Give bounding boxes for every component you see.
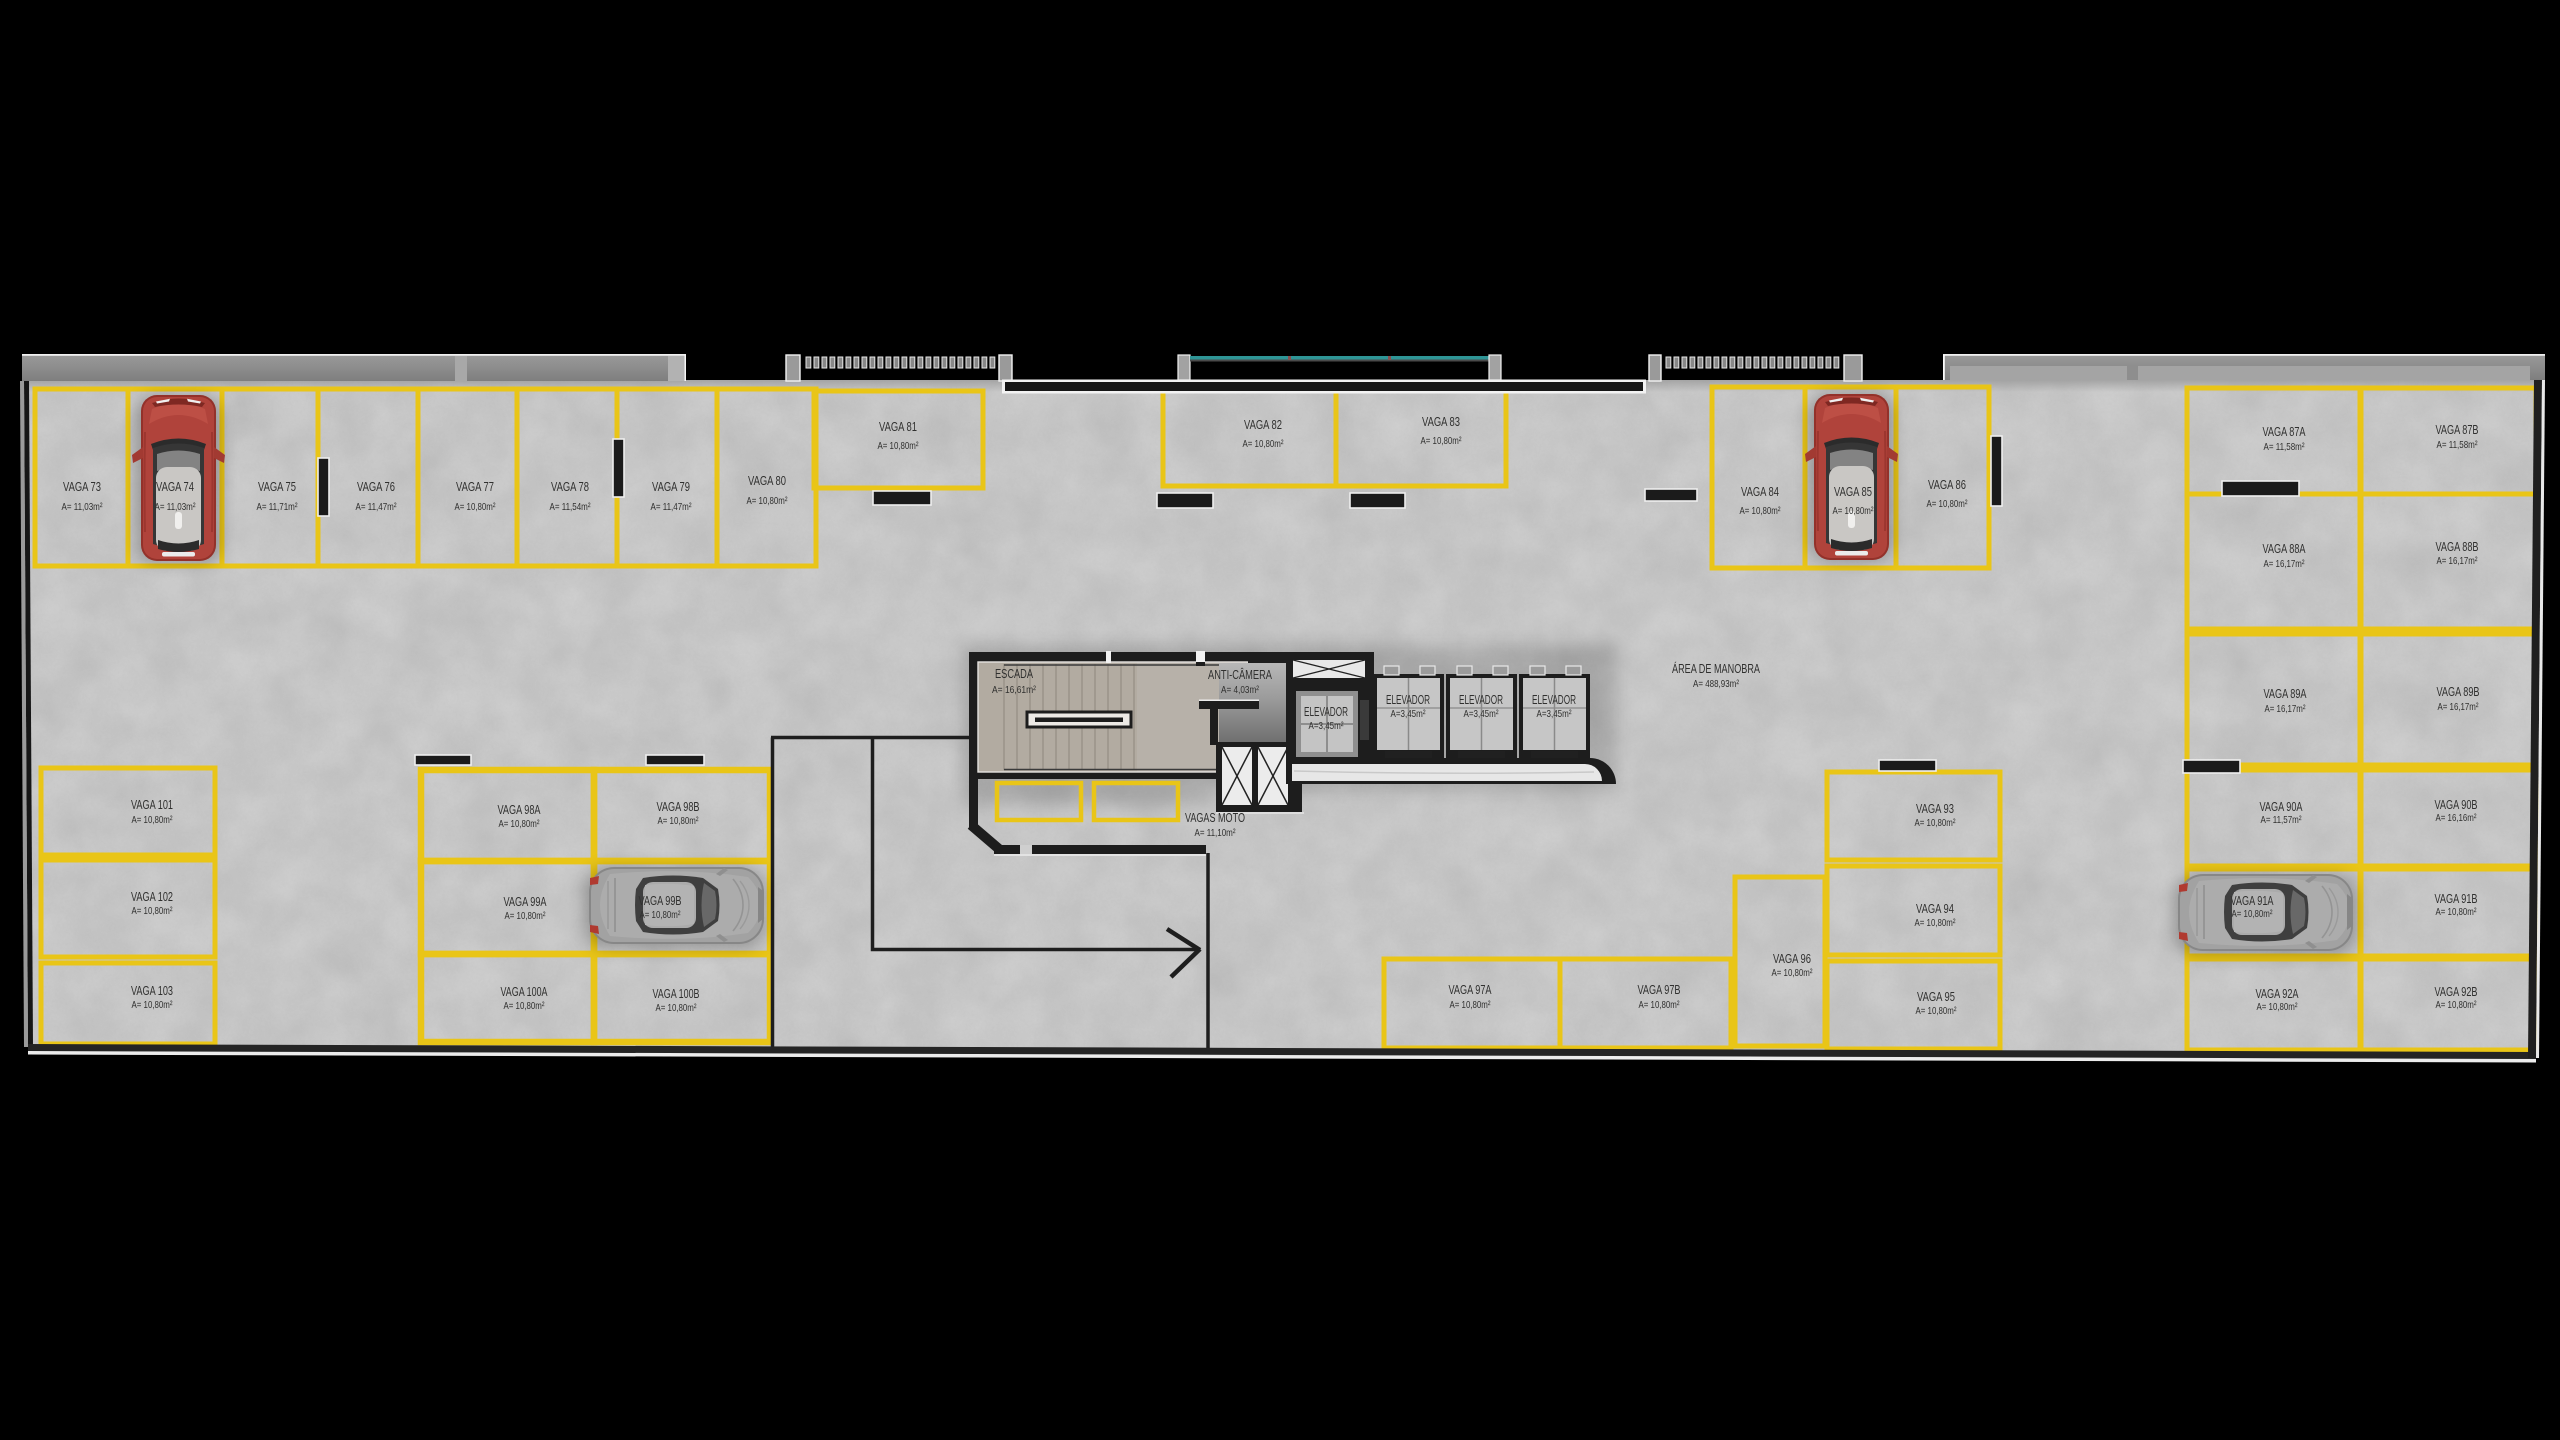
svg-text:A= 16,17m²: A= 16,17m² bbox=[2264, 558, 2305, 570]
svg-text:VAGA 87A: VAGA 87A bbox=[2263, 425, 2306, 439]
svg-text:A= 16,61m²: A= 16,61m² bbox=[992, 684, 1036, 696]
svg-text:VAGA 96: VAGA 96 bbox=[1773, 952, 1811, 966]
svg-text:VAGA 84: VAGA 84 bbox=[1741, 485, 1779, 499]
svg-text:VAGA 91A: VAGA 91A bbox=[2231, 894, 2274, 908]
svg-text:A= 10,80m²: A= 10,80m² bbox=[1916, 1005, 1957, 1017]
svg-text:A= 11,71m²: A= 11,71m² bbox=[257, 501, 298, 513]
svg-text:VAGA 102: VAGA 102 bbox=[131, 890, 173, 904]
svg-text:A= 10,80m²: A= 10,80m² bbox=[1450, 999, 1491, 1011]
svg-text:VAGA 92B: VAGA 92B bbox=[2435, 985, 2478, 999]
svg-text:VAGA 79: VAGA 79 bbox=[652, 480, 690, 494]
svg-text:A= 10,80m²: A= 10,80m² bbox=[504, 1000, 545, 1012]
svg-text:VAGA 99A: VAGA 99A bbox=[504, 895, 547, 909]
svg-text:VAGA 89A: VAGA 89A bbox=[2264, 687, 2307, 701]
svg-text:VAGA 75: VAGA 75 bbox=[258, 480, 296, 494]
svg-text:A= 16,17m²: A= 16,17m² bbox=[2437, 555, 2478, 567]
svg-text:A= 10,80m²: A= 10,80m² bbox=[1927, 498, 1968, 510]
svg-text:ÁREA DE MANOBRA: ÁREA DE MANOBRA bbox=[1672, 661, 1760, 676]
svg-text:VAGA 78: VAGA 78 bbox=[551, 480, 589, 494]
svg-text:A= 11,03m²: A= 11,03m² bbox=[62, 501, 103, 513]
svg-text:VAGA 100B: VAGA 100B bbox=[653, 987, 700, 1001]
svg-text:A= 10,80m²: A= 10,80m² bbox=[1243, 438, 1284, 450]
svg-text:A= 10,80m²: A= 10,80m² bbox=[132, 814, 173, 826]
svg-text:VAGA 93: VAGA 93 bbox=[1916, 802, 1954, 816]
svg-text:A= 10,80m²: A= 10,80m² bbox=[747, 495, 788, 507]
svg-text:VAGA 91B: VAGA 91B bbox=[2435, 892, 2478, 906]
svg-text:VAGA 88B: VAGA 88B bbox=[2436, 540, 2479, 554]
svg-text:A= 10,80m²: A= 10,80m² bbox=[878, 440, 919, 452]
svg-text:VAGA 89B: VAGA 89B bbox=[2437, 685, 2480, 699]
svg-text:VAGA 81: VAGA 81 bbox=[879, 420, 917, 434]
svg-text:A= 10,80m²: A= 10,80m² bbox=[658, 815, 699, 827]
svg-text:VAGA 86: VAGA 86 bbox=[1928, 478, 1966, 492]
svg-text:VAGA 77: VAGA 77 bbox=[456, 480, 494, 494]
svg-text:A= 4,03m²: A= 4,03m² bbox=[1221, 684, 1259, 696]
svg-text:VAGA 85: VAGA 85 bbox=[1834, 485, 1872, 499]
svg-text:VAGA 98A: VAGA 98A bbox=[498, 803, 541, 817]
svg-text:VAGA 99B: VAGA 99B bbox=[639, 894, 682, 908]
svg-text:A= 11,47m²: A= 11,47m² bbox=[356, 501, 397, 513]
svg-text:VAGA 94: VAGA 94 bbox=[1916, 902, 1954, 916]
svg-text:A= 10,80m²: A= 10,80m² bbox=[1833, 505, 1874, 517]
svg-text:A=3,45m²: A=3,45m² bbox=[1464, 708, 1499, 720]
svg-text:A= 10,80m²: A= 10,80m² bbox=[505, 910, 546, 922]
svg-text:A= 11,58m²: A= 11,58m² bbox=[2437, 439, 2478, 451]
svg-text:VAGA 98B: VAGA 98B bbox=[657, 800, 700, 814]
svg-text:VAGA 73: VAGA 73 bbox=[63, 480, 101, 494]
svg-text:VAGA 74: VAGA 74 bbox=[156, 480, 194, 494]
svg-text:A= 10,80m²: A= 10,80m² bbox=[2257, 1001, 2298, 1013]
svg-text:A= 10,80m²: A= 10,80m² bbox=[656, 1002, 697, 1014]
svg-text:A= 10,80m²: A= 10,80m² bbox=[1639, 999, 1680, 1011]
svg-text:VAGA 83: VAGA 83 bbox=[1422, 415, 1460, 429]
svg-text:ESCADA: ESCADA bbox=[995, 667, 1033, 681]
svg-text:VAGA 76: VAGA 76 bbox=[357, 480, 395, 494]
svg-text:VAGA 95: VAGA 95 bbox=[1917, 990, 1955, 1004]
svg-text:A= 10,80m²: A= 10,80m² bbox=[2232, 908, 2273, 920]
svg-text:VAGA 90B: VAGA 90B bbox=[2435, 798, 2478, 812]
svg-text:A= 11,58m²: A= 11,58m² bbox=[2264, 441, 2305, 453]
svg-text:VAGA 88A: VAGA 88A bbox=[2263, 542, 2306, 556]
svg-text:A= 11,57m²: A= 11,57m² bbox=[2261, 814, 2302, 826]
svg-text:ELEVADOR: ELEVADOR bbox=[1532, 693, 1576, 707]
svg-text:A= 11,03m²: A= 11,03m² bbox=[155, 501, 196, 513]
svg-text:A= 10,80m²: A= 10,80m² bbox=[2436, 906, 2477, 918]
svg-text:A= 10,80m²: A= 10,80m² bbox=[1915, 817, 1956, 829]
svg-text:VAGA 100A: VAGA 100A bbox=[501, 985, 548, 999]
svg-text:VAGA 90A: VAGA 90A bbox=[2260, 800, 2303, 814]
svg-text:A= 10,80m²: A= 10,80m² bbox=[1772, 967, 1813, 979]
svg-text:VAGA 101: VAGA 101 bbox=[131, 798, 173, 812]
svg-text:VAGAS MOTO: VAGAS MOTO bbox=[1185, 811, 1245, 825]
svg-text:A= 10,80m²: A= 10,80m² bbox=[132, 999, 173, 1011]
svg-text:A=3,45m²: A=3,45m² bbox=[1309, 720, 1344, 732]
svg-text:A= 16,17m²: A= 16,17m² bbox=[2438, 701, 2479, 713]
svg-text:A= 488,93m²: A= 488,93m² bbox=[1693, 678, 1739, 690]
svg-text:VAGA 97A: VAGA 97A bbox=[1449, 983, 1492, 997]
svg-text:A= 11,47m²: A= 11,47m² bbox=[651, 501, 692, 513]
svg-text:A=3,45m²: A=3,45m² bbox=[1537, 708, 1572, 720]
svg-text:A= 10,80m²: A= 10,80m² bbox=[1915, 917, 1956, 929]
svg-text:A= 10,80m²: A= 10,80m² bbox=[1740, 505, 1781, 517]
svg-text:A= 16,17m²: A= 16,17m² bbox=[2265, 703, 2306, 715]
svg-text:VAGA 87B: VAGA 87B bbox=[2436, 423, 2479, 437]
svg-text:A= 10,80m²: A= 10,80m² bbox=[2436, 999, 2477, 1011]
svg-text:A=3,45m²: A=3,45m² bbox=[1391, 708, 1426, 720]
svg-text:A= 16,16m²: A= 16,16m² bbox=[2436, 812, 2477, 824]
svg-text:A= 11,54m²: A= 11,54m² bbox=[550, 501, 591, 513]
svg-text:ELEVADOR: ELEVADOR bbox=[1386, 693, 1430, 707]
svg-text:A= 10,80m²: A= 10,80m² bbox=[640, 909, 681, 921]
svg-text:VAGA 97B: VAGA 97B bbox=[1638, 983, 1681, 997]
svg-text:A= 10,80m²: A= 10,80m² bbox=[1421, 435, 1462, 447]
svg-text:A= 11,10m²: A= 11,10m² bbox=[1195, 827, 1236, 839]
svg-text:ELEVADOR: ELEVADOR bbox=[1459, 693, 1503, 707]
svg-text:ANTI-CÂMERA: ANTI-CÂMERA bbox=[1208, 667, 1272, 682]
svg-text:VAGA 80: VAGA 80 bbox=[748, 474, 786, 488]
svg-text:ELEVADOR: ELEVADOR bbox=[1304, 705, 1348, 719]
svg-text:A= 10,80m²: A= 10,80m² bbox=[132, 905, 173, 917]
svg-text:VAGA 92A: VAGA 92A bbox=[2256, 987, 2299, 1001]
svg-text:A= 10,80m²: A= 10,80m² bbox=[455, 501, 496, 513]
svg-text:A= 10,80m²: A= 10,80m² bbox=[499, 818, 540, 830]
svg-text:VAGA 103: VAGA 103 bbox=[131, 984, 173, 998]
svg-text:VAGA 82: VAGA 82 bbox=[1244, 418, 1282, 432]
